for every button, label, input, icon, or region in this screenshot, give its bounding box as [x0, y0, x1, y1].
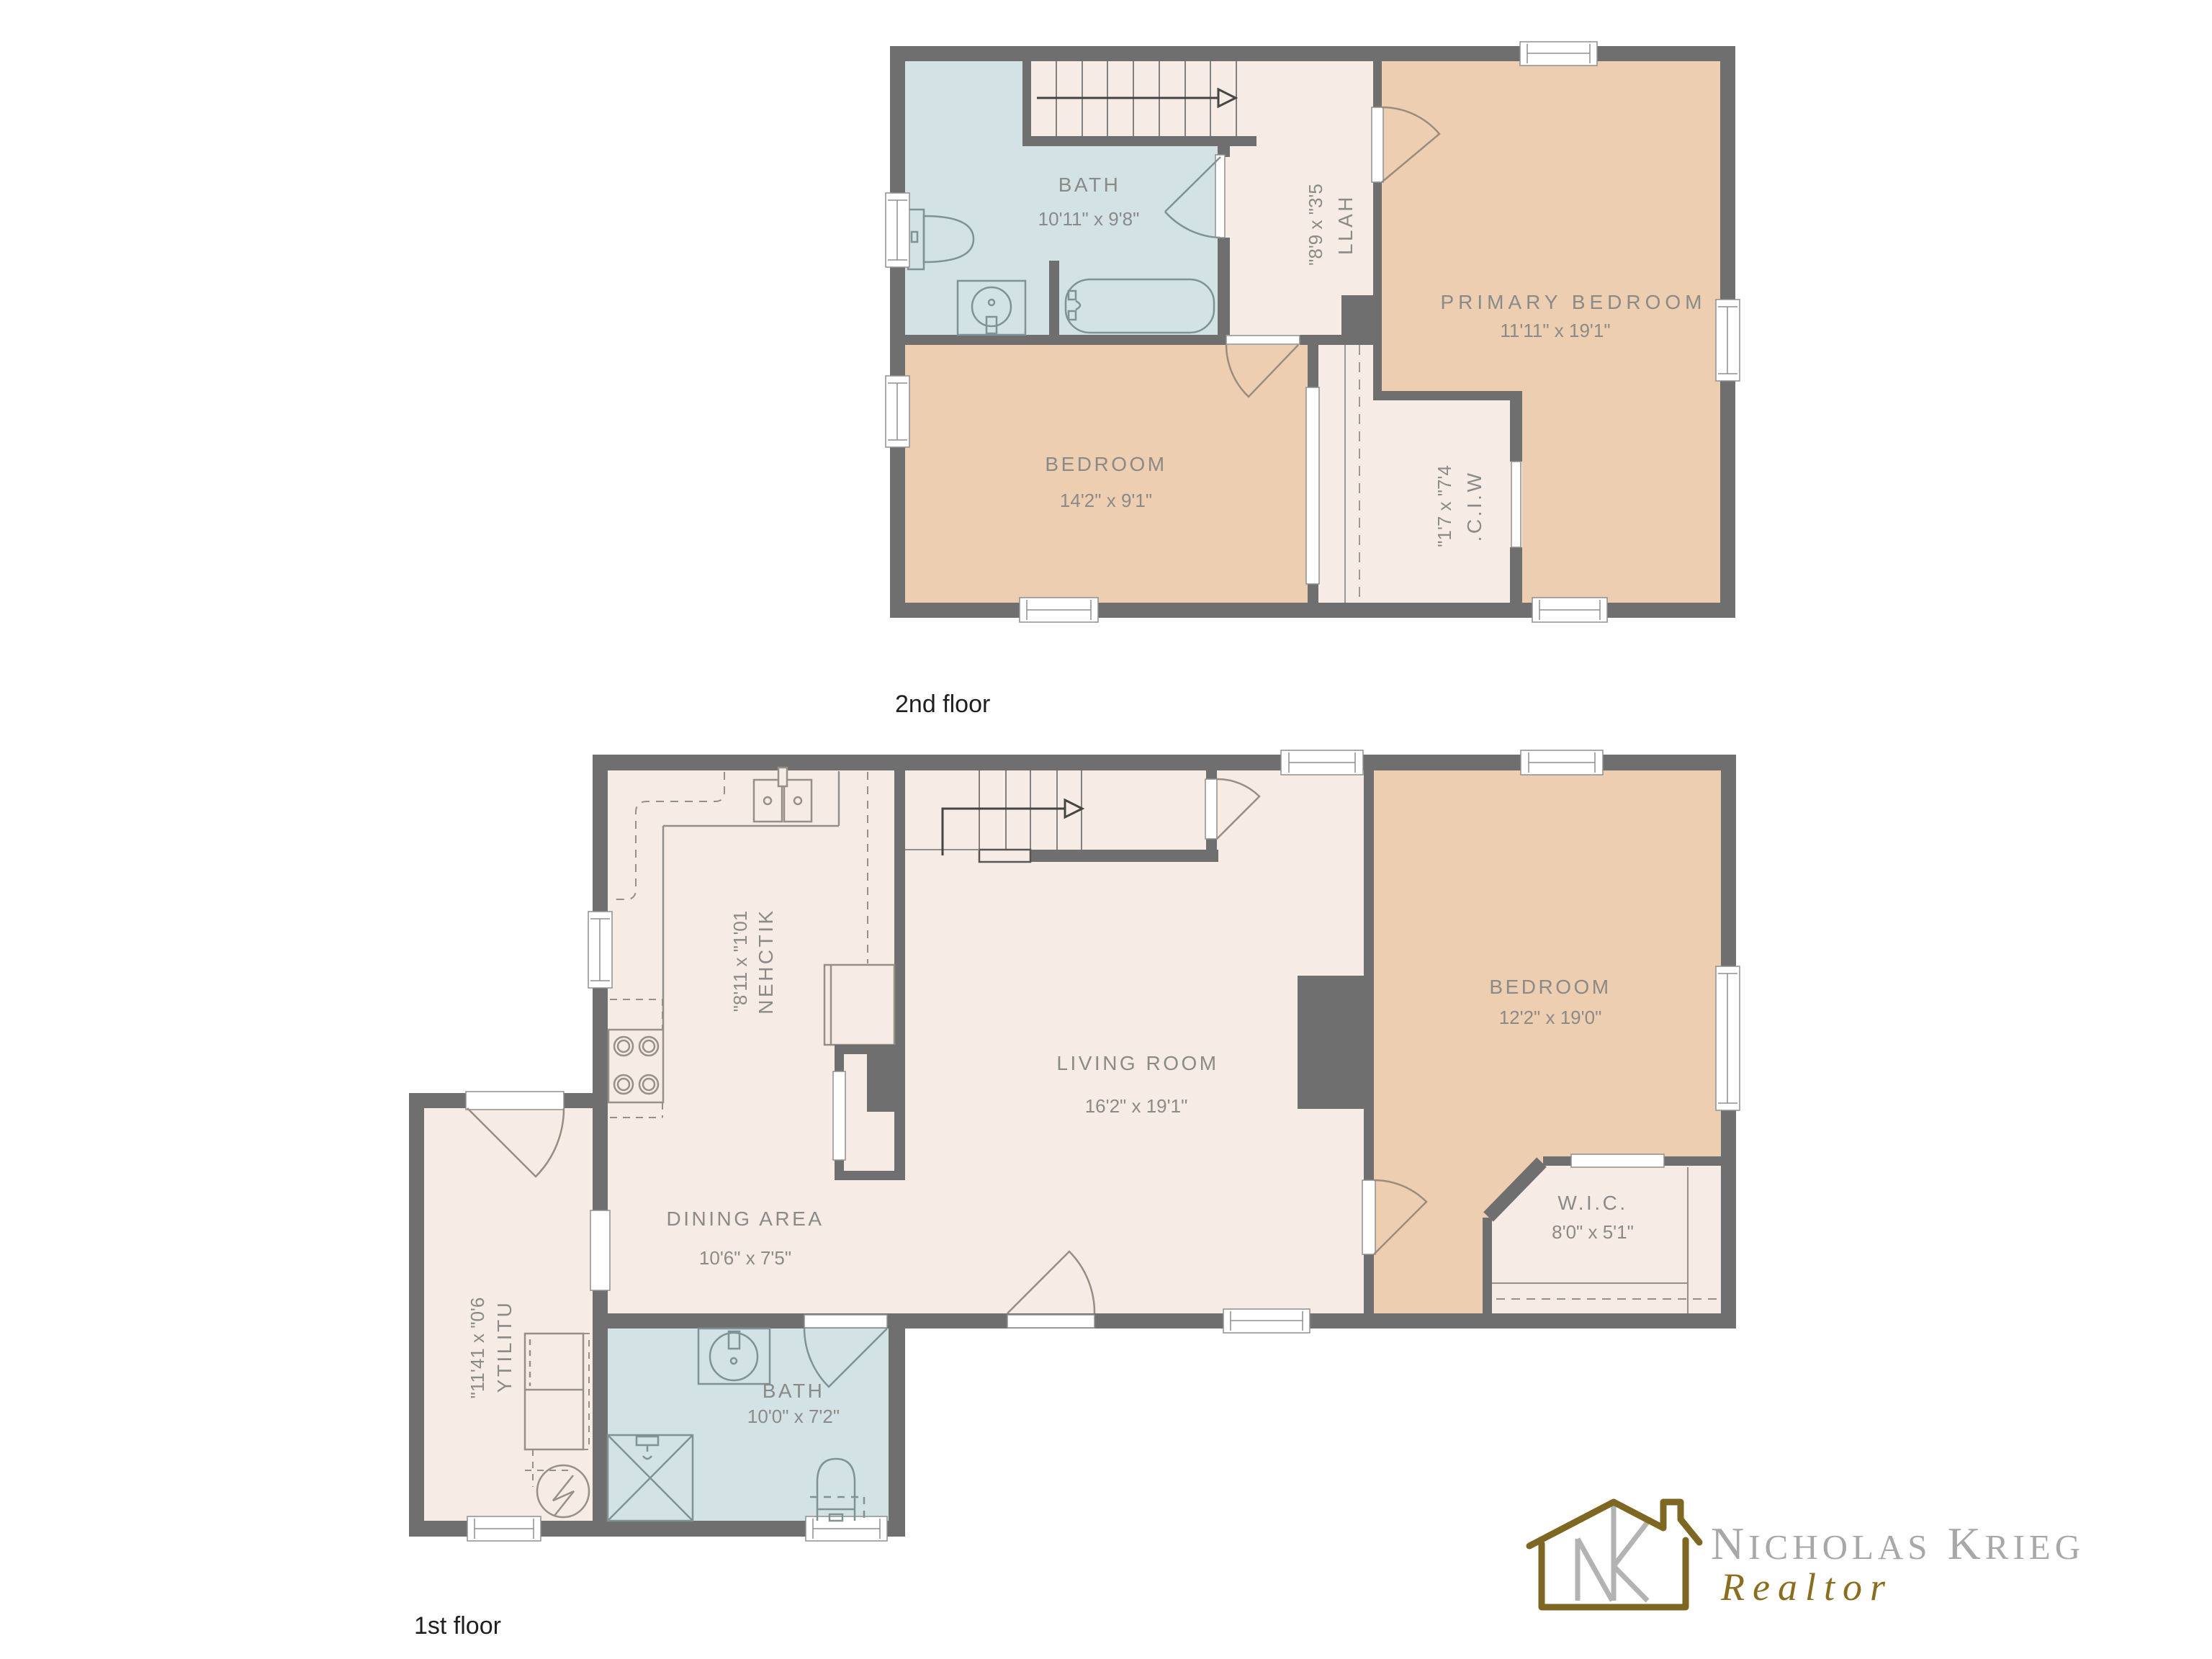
svg-text:10'11" x 9'8": 10'11" x 9'8" [1038, 208, 1140, 230]
svg-text:"8'11 x "1'01: "8'11 x "1'01 [729, 911, 751, 1012]
svg-text:1st floor: 1st floor [414, 1612, 501, 1640]
svg-text:12'2" x 19'0": 12'2" x 19'0" [1499, 1007, 1602, 1028]
svg-text:BEDROOM: BEDROOM [1489, 976, 1611, 998]
svg-text:"8'9 x "3'5: "8'9 x "3'5 [1305, 184, 1326, 266]
svg-text:14'2" x 9'1": 14'2" x 9'1" [1060, 490, 1152, 511]
svg-text:.C.I.W: .C.I.W [1463, 471, 1485, 542]
svg-text:PRIMARY BEDROOM: PRIMARY BEDROOM [1440, 291, 1706, 313]
svg-text:YTILITU: YTILITU [493, 1300, 516, 1393]
svg-text:BATH: BATH [1058, 174, 1121, 196]
svg-text:2nd floor: 2nd floor [895, 691, 990, 718]
svg-text:LLAH: LLAH [1334, 194, 1357, 255]
svg-text:LIVING ROOM: LIVING ROOM [1056, 1052, 1218, 1074]
svg-text:BATH: BATH [763, 1380, 825, 1402]
svg-text:10'6" x 7'5": 10'6" x 7'5" [699, 1247, 791, 1269]
svg-text:"1'7 x "7'4: "1'7 x "7'4 [1434, 465, 1455, 547]
svg-text:10'0" x 7'2": 10'0" x 7'2" [747, 1406, 840, 1427]
svg-text:11'11" x 19'1": 11'11" x 19'1" [1500, 320, 1610, 341]
svg-text:W.I.C.: W.I.C. [1557, 1192, 1627, 1214]
svg-text:16'2" x 19'1": 16'2" x 19'1" [1085, 1095, 1188, 1117]
svg-text:8'0" x 5'1": 8'0" x 5'1" [1552, 1221, 1634, 1243]
svg-text:BEDROOM: BEDROOM [1045, 453, 1166, 475]
svg-text:NEHCTIK: NEHCTIK [755, 908, 777, 1014]
svg-text:Realtor: Realtor [1720, 1565, 1893, 1609]
svg-text:"11'41 x "0'6: "11'41 x "0'6 [467, 1298, 488, 1399]
svg-text:DINING AREA: DINING AREA [667, 1208, 824, 1230]
